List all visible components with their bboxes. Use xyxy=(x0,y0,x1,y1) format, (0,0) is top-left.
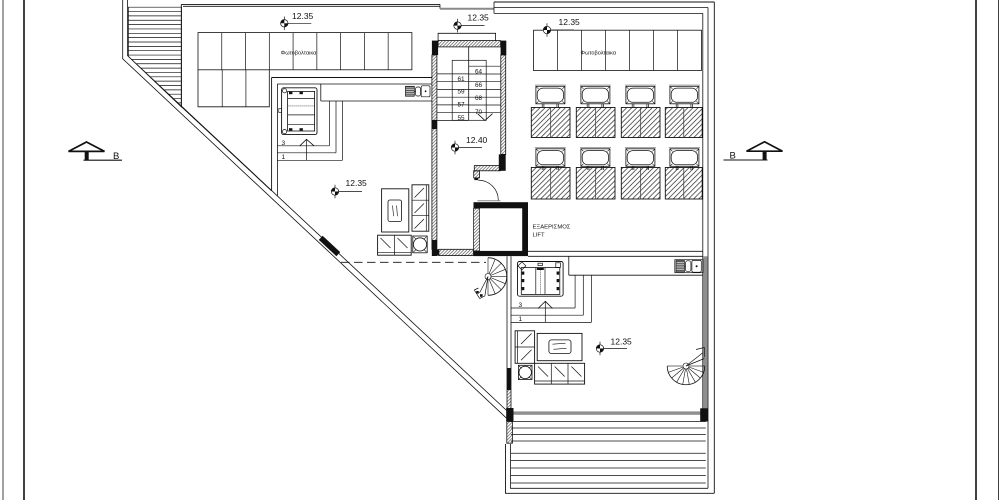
svg-text:55: 55 xyxy=(457,115,465,122)
svg-text:1: 1 xyxy=(519,316,523,323)
svg-text:12.40: 12.40 xyxy=(466,135,488,145)
svg-text:B: B xyxy=(113,151,119,162)
svg-text:59: 59 xyxy=(457,89,465,96)
svg-text:66: 66 xyxy=(475,82,483,89)
svg-text:68: 68 xyxy=(475,95,483,102)
svg-text:64: 64 xyxy=(475,69,483,76)
svg-text:57: 57 xyxy=(457,102,465,109)
svg-text:B: B xyxy=(730,151,736,162)
svg-text:Φωτοβολταικα: Φωτοβολταικα xyxy=(281,51,317,57)
svg-text:12.35: 12.35 xyxy=(346,178,368,188)
svg-text:12.35: 12.35 xyxy=(468,13,490,23)
svg-text:61: 61 xyxy=(457,76,465,83)
svg-text:12.35: 12.35 xyxy=(559,17,581,27)
svg-text:12.35: 12.35 xyxy=(611,336,633,346)
svg-text:LIFT: LIFT xyxy=(533,232,546,238)
svg-text:3: 3 xyxy=(282,140,286,147)
svg-text:3: 3 xyxy=(519,302,523,309)
svg-text:ΕΞΑΕΡΙΣΜΟΣ: ΕΞΑΕΡΙΣΜΟΣ xyxy=(533,225,571,231)
svg-text:1: 1 xyxy=(282,154,286,161)
svg-text:Φωτοβολταικα: Φωτοβολταικα xyxy=(581,50,617,56)
svg-text:12.35: 12.35 xyxy=(292,11,314,21)
